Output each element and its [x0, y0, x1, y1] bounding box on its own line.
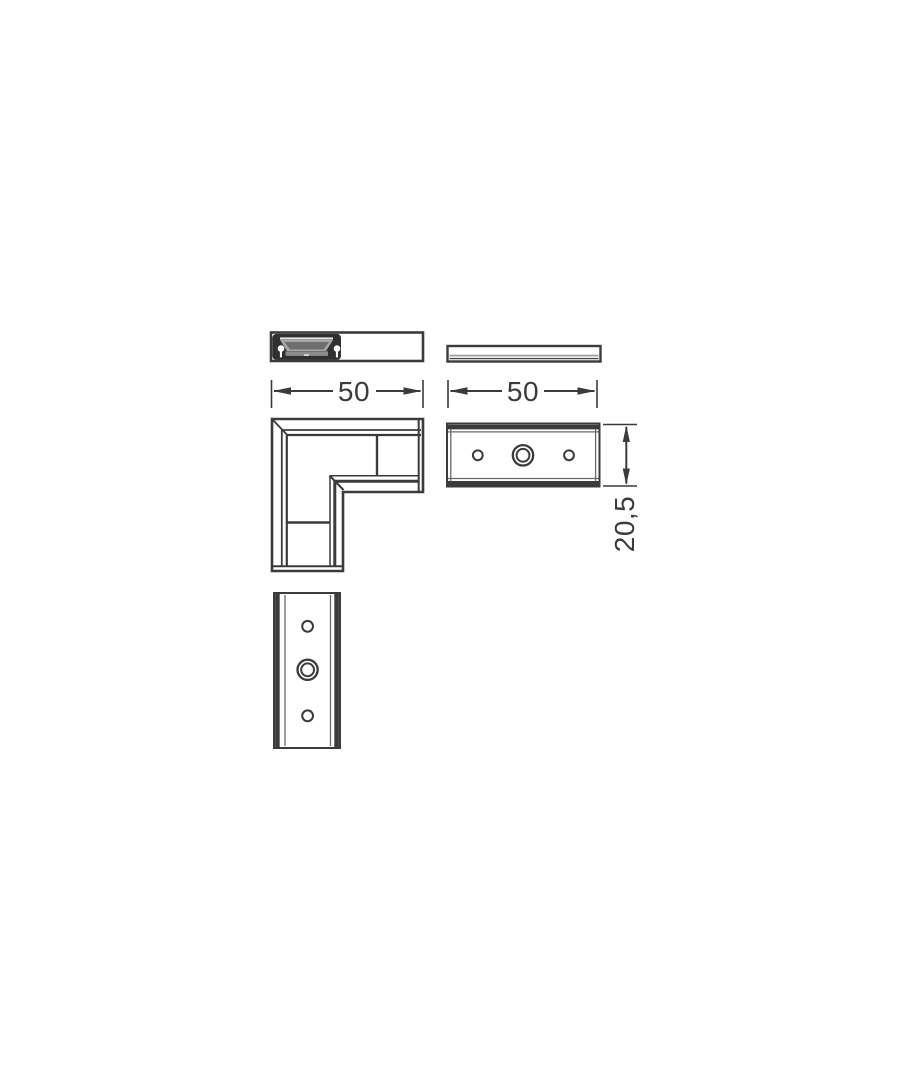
technical-drawing-canvas: 50 50	[0, 0, 910, 1080]
profile-top-slot	[280, 337, 333, 339]
arrowhead-up-icon	[623, 426, 630, 443]
arrowhead-right-icon	[578, 387, 596, 395]
dimension-label-20-5: 20,5	[609, 496, 640, 553]
arrowhead-right-icon	[404, 387, 422, 395]
plate-screw-hole-right	[564, 450, 574, 460]
mounting-plate-bottom-view	[274, 593, 340, 748]
profile-screw-port-left	[278, 345, 285, 352]
arrowhead-left-icon	[450, 387, 468, 395]
mounting-plate-front-view	[447, 424, 600, 487]
profile-bottom-notch	[304, 354, 309, 356]
dimension-label-50-right: 50	[507, 376, 539, 407]
width-dimension-right: 50	[448, 376, 597, 408]
corner-outline	[272, 419, 423, 571]
profile-channel-inner	[285, 342, 330, 350]
width-dimension-left: 50	[272, 376, 424, 408]
plate-center-hole-inner	[301, 663, 314, 676]
profile-slot-right	[336, 351, 338, 357]
corner-connector-drawing: 50 50	[0, 0, 910, 1080]
plate-screw-hole-top	[302, 621, 313, 632]
cover-strip-side-view	[448, 346, 601, 362]
corner-connector-top-view	[272, 419, 423, 571]
arrowhead-left-icon	[273, 387, 291, 395]
plate-screw-hole-left	[473, 450, 483, 460]
profile-end-view	[271, 333, 423, 362]
profile-slot-left	[280, 351, 282, 357]
profile-screw-port-right	[334, 345, 341, 352]
arrowhead-down-icon	[623, 469, 630, 486]
height-dimension: 20,5	[603, 425, 640, 553]
plate-center-hole-inner	[517, 449, 530, 462]
dimension-label-50-left: 50	[338, 376, 370, 407]
plate-screw-hole-bottom	[302, 710, 313, 721]
